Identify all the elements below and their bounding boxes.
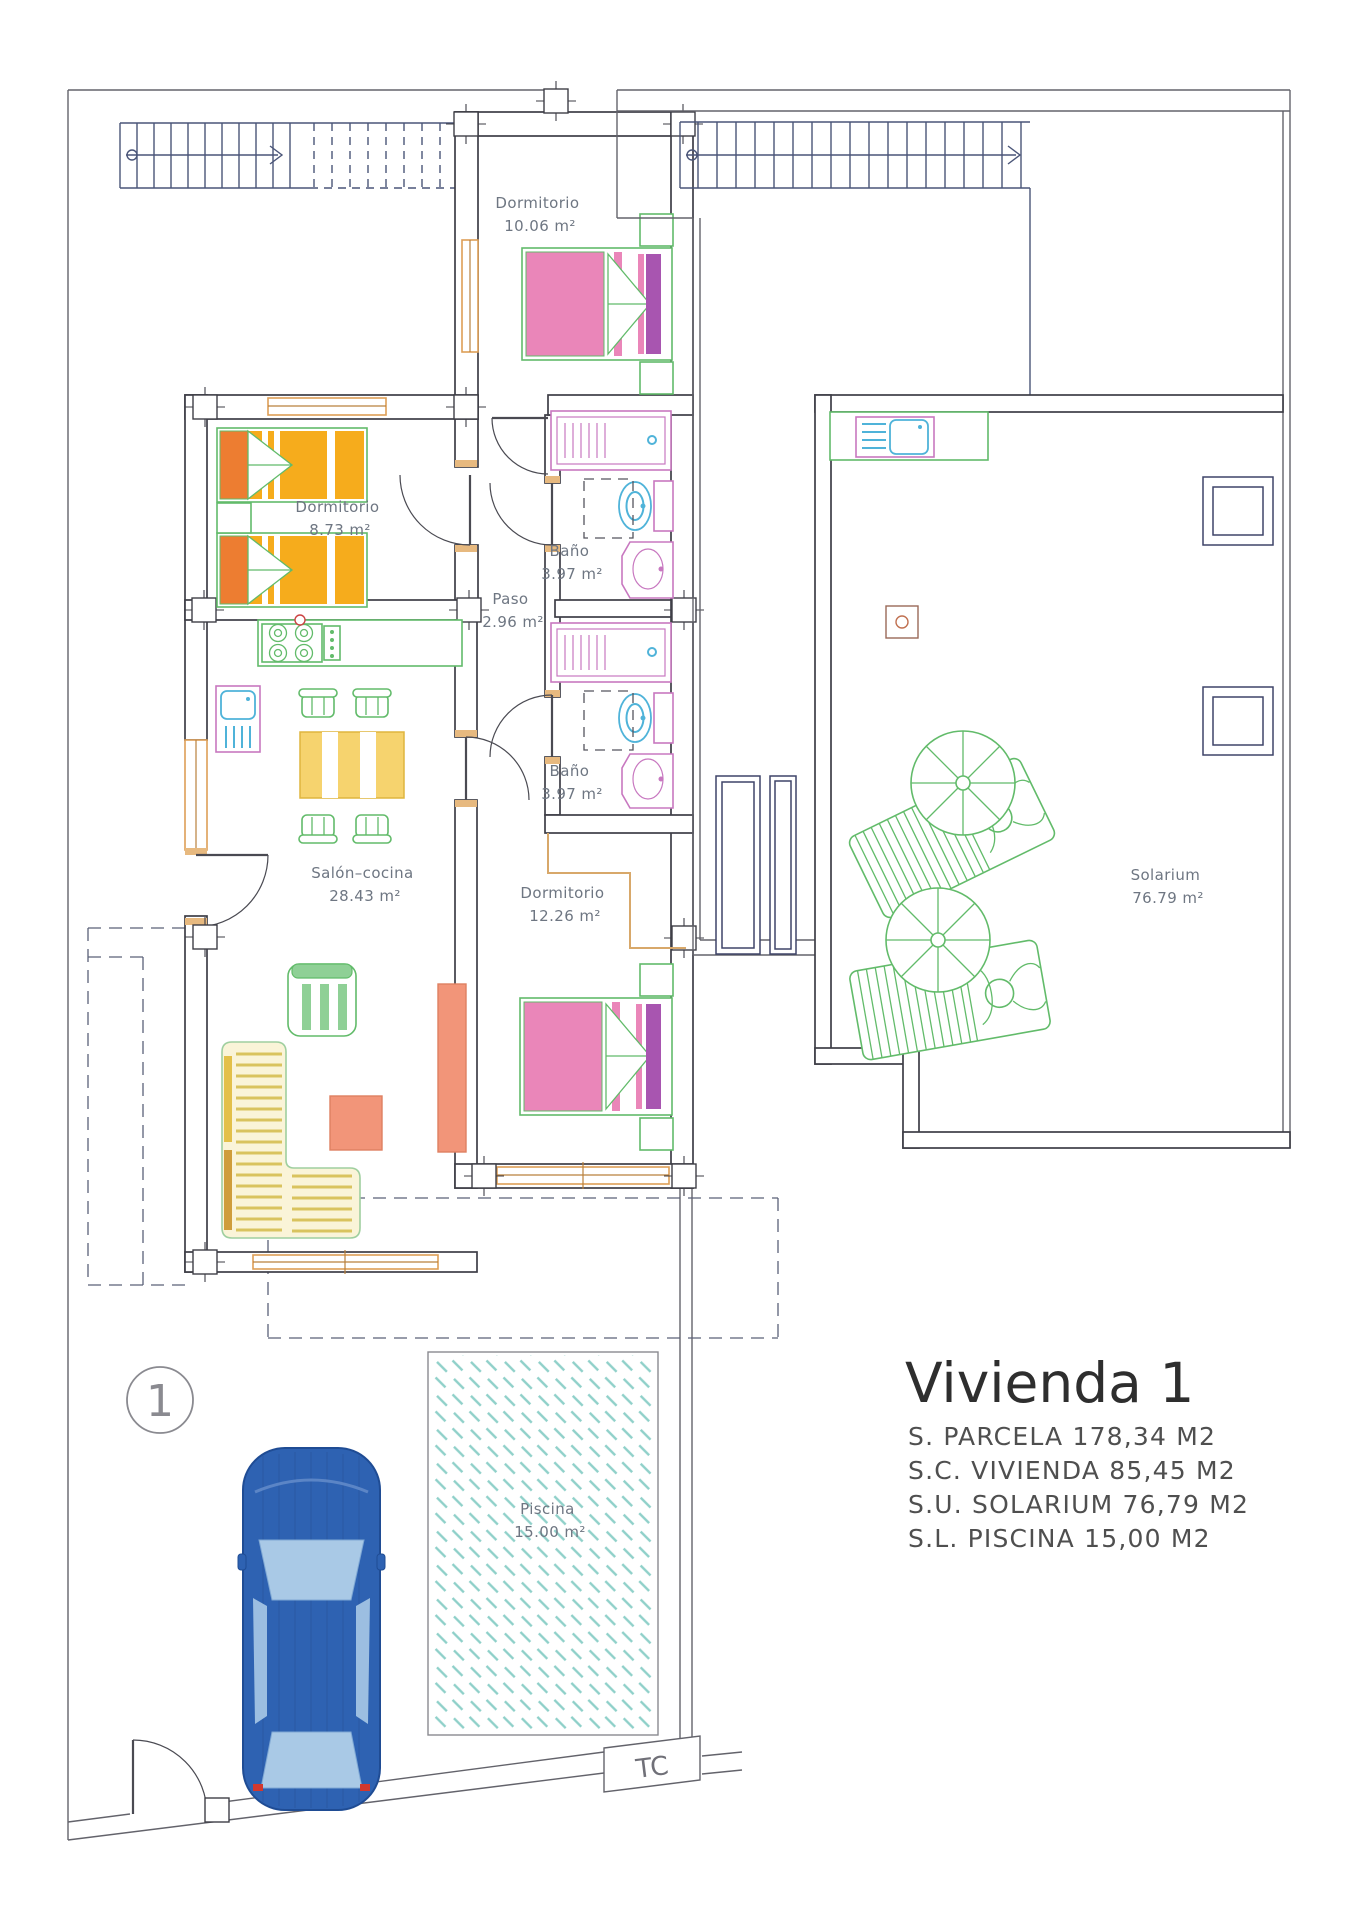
- nightstand: [640, 214, 673, 246]
- tc-box: TC: [604, 1736, 700, 1792]
- skylight: [1203, 477, 1273, 545]
- title-block: Vivienda 1 S. PARCELA 178,34 M2 S.C. VIV…: [905, 1351, 1249, 1553]
- room-label-dormitorio3: Dormitorio 12.26 m²: [520, 884, 609, 925]
- staircase-solarium: [680, 122, 1030, 395]
- coffee-table: [330, 1096, 382, 1150]
- door-bath2: [490, 690, 560, 764]
- shower: [551, 623, 671, 682]
- room-label-solarium: Solarium 76.79 m²: [1131, 866, 1206, 907]
- unit-marker: 1: [127, 1367, 193, 1433]
- room-label-dormitorio1: Dormitorio 10.06 m²: [495, 194, 584, 235]
- ground-floor-plan: TC 1: [68, 81, 778, 1840]
- door-bedroom2: [400, 460, 477, 552]
- window-bedroom2-north: [268, 398, 386, 415]
- nightstand: [640, 362, 673, 394]
- extractor: [295, 615, 305, 625]
- car: [238, 1448, 385, 1810]
- window-bedroom1-west: [462, 240, 478, 352]
- room-label-salon: Salón–cocina 28.43 m²: [311, 864, 419, 905]
- summary-vivienda: S.C. VIVIENDA 85,45 M2: [908, 1456, 1236, 1485]
- entrance-gate: [133, 1740, 229, 1822]
- unit-marker-number: 1: [146, 1376, 174, 1427]
- kitchen-counter: [258, 615, 462, 666]
- porch-dashed-outline: [88, 928, 185, 1285]
- umbrella-icon: [911, 731, 1015, 835]
- nightstand: [640, 1118, 673, 1150]
- washbasin: [622, 542, 673, 598]
- door-bedroom1: [492, 418, 548, 474]
- nightstand: [640, 964, 673, 996]
- door-bath1: [490, 476, 560, 552]
- twin-bed-a: [217, 428, 367, 502]
- floor-plan-page: TC 1: [0, 0, 1357, 1920]
- floor-drain: [886, 606, 918, 638]
- summary-parcela: S. PARCELA 178,34 M2: [908, 1422, 1216, 1451]
- plan-title: Vivienda 1: [905, 1351, 1194, 1415]
- window-kitchen-west: [185, 740, 207, 850]
- shower: [551, 411, 671, 470]
- kitchen-sink: [216, 686, 260, 752]
- toilet: [619, 481, 673, 531]
- bathroom2-fixtures: [551, 623, 673, 808]
- summary-piscina: S.L. PISCINA 15,00 M2: [908, 1524, 1211, 1553]
- solarium-kitchenette: [830, 412, 988, 460]
- twin-bed-b: [217, 533, 367, 607]
- pool: [428, 1352, 658, 1735]
- washbasin: [622, 754, 673, 808]
- planter: [770, 776, 796, 954]
- tc-label: TC: [633, 1751, 670, 1785]
- tv-bench: [438, 984, 466, 1152]
- umbrella-icon: [886, 888, 990, 992]
- stove: [262, 624, 322, 662]
- double-bed-bedroom3: [520, 998, 672, 1115]
- armchair: [288, 964, 356, 1036]
- dining-table: [299, 689, 404, 843]
- solarium-floor-plan: [617, 90, 1290, 1148]
- summary-solarium: S.U. SOLARIUM 76,79 M2: [908, 1490, 1249, 1519]
- planter: [716, 776, 760, 954]
- room-label-dormitorio2: Dormitorio 8.73 m²: [295, 498, 384, 539]
- toilet: [619, 693, 673, 743]
- floor-plan-svg: TC 1: [0, 0, 1357, 1920]
- skylight: [1203, 687, 1273, 755]
- staircase-exterior: [120, 123, 455, 188]
- bedside-cabinet: [217, 503, 251, 533]
- double-bed-bedroom1: [522, 248, 672, 360]
- room-label-paso: Paso 2.96 m²: [482, 590, 544, 631]
